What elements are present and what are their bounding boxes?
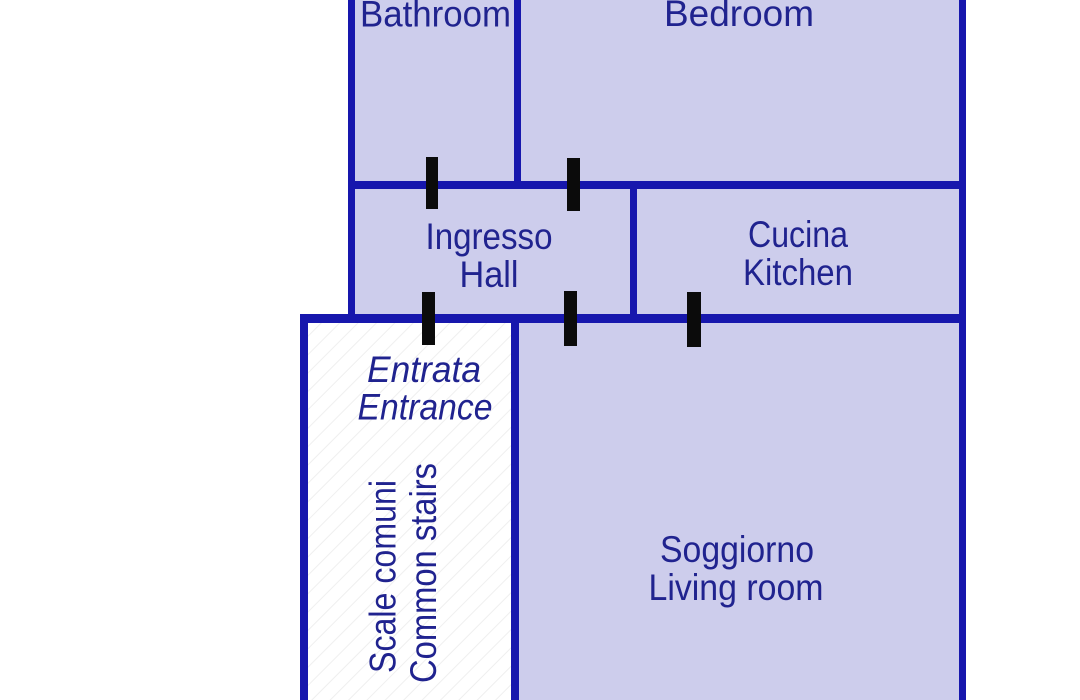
- svg-text:Living room: Living room: [649, 567, 824, 608]
- svg-text:Soggiorno: Soggiorno: [660, 529, 814, 570]
- svg-text:Hall: Hall: [460, 254, 519, 295]
- svg-text:Entrata: Entrata: [367, 349, 481, 390]
- svg-text:Scale comuni: Scale comuni: [363, 480, 404, 673]
- svg-text:Bedroom: Bedroom: [664, 0, 814, 34]
- svg-text:Entrance: Entrance: [358, 387, 493, 428]
- svg-text:Cucina: Cucina: [748, 214, 848, 255]
- svg-text:Common stairs: Common stairs: [403, 463, 444, 683]
- svg-text:Kitchen: Kitchen: [743, 252, 853, 293]
- svg-text:Ingresso: Ingresso: [426, 216, 553, 257]
- svg-text:Bathroom: Bathroom: [360, 0, 511, 35]
